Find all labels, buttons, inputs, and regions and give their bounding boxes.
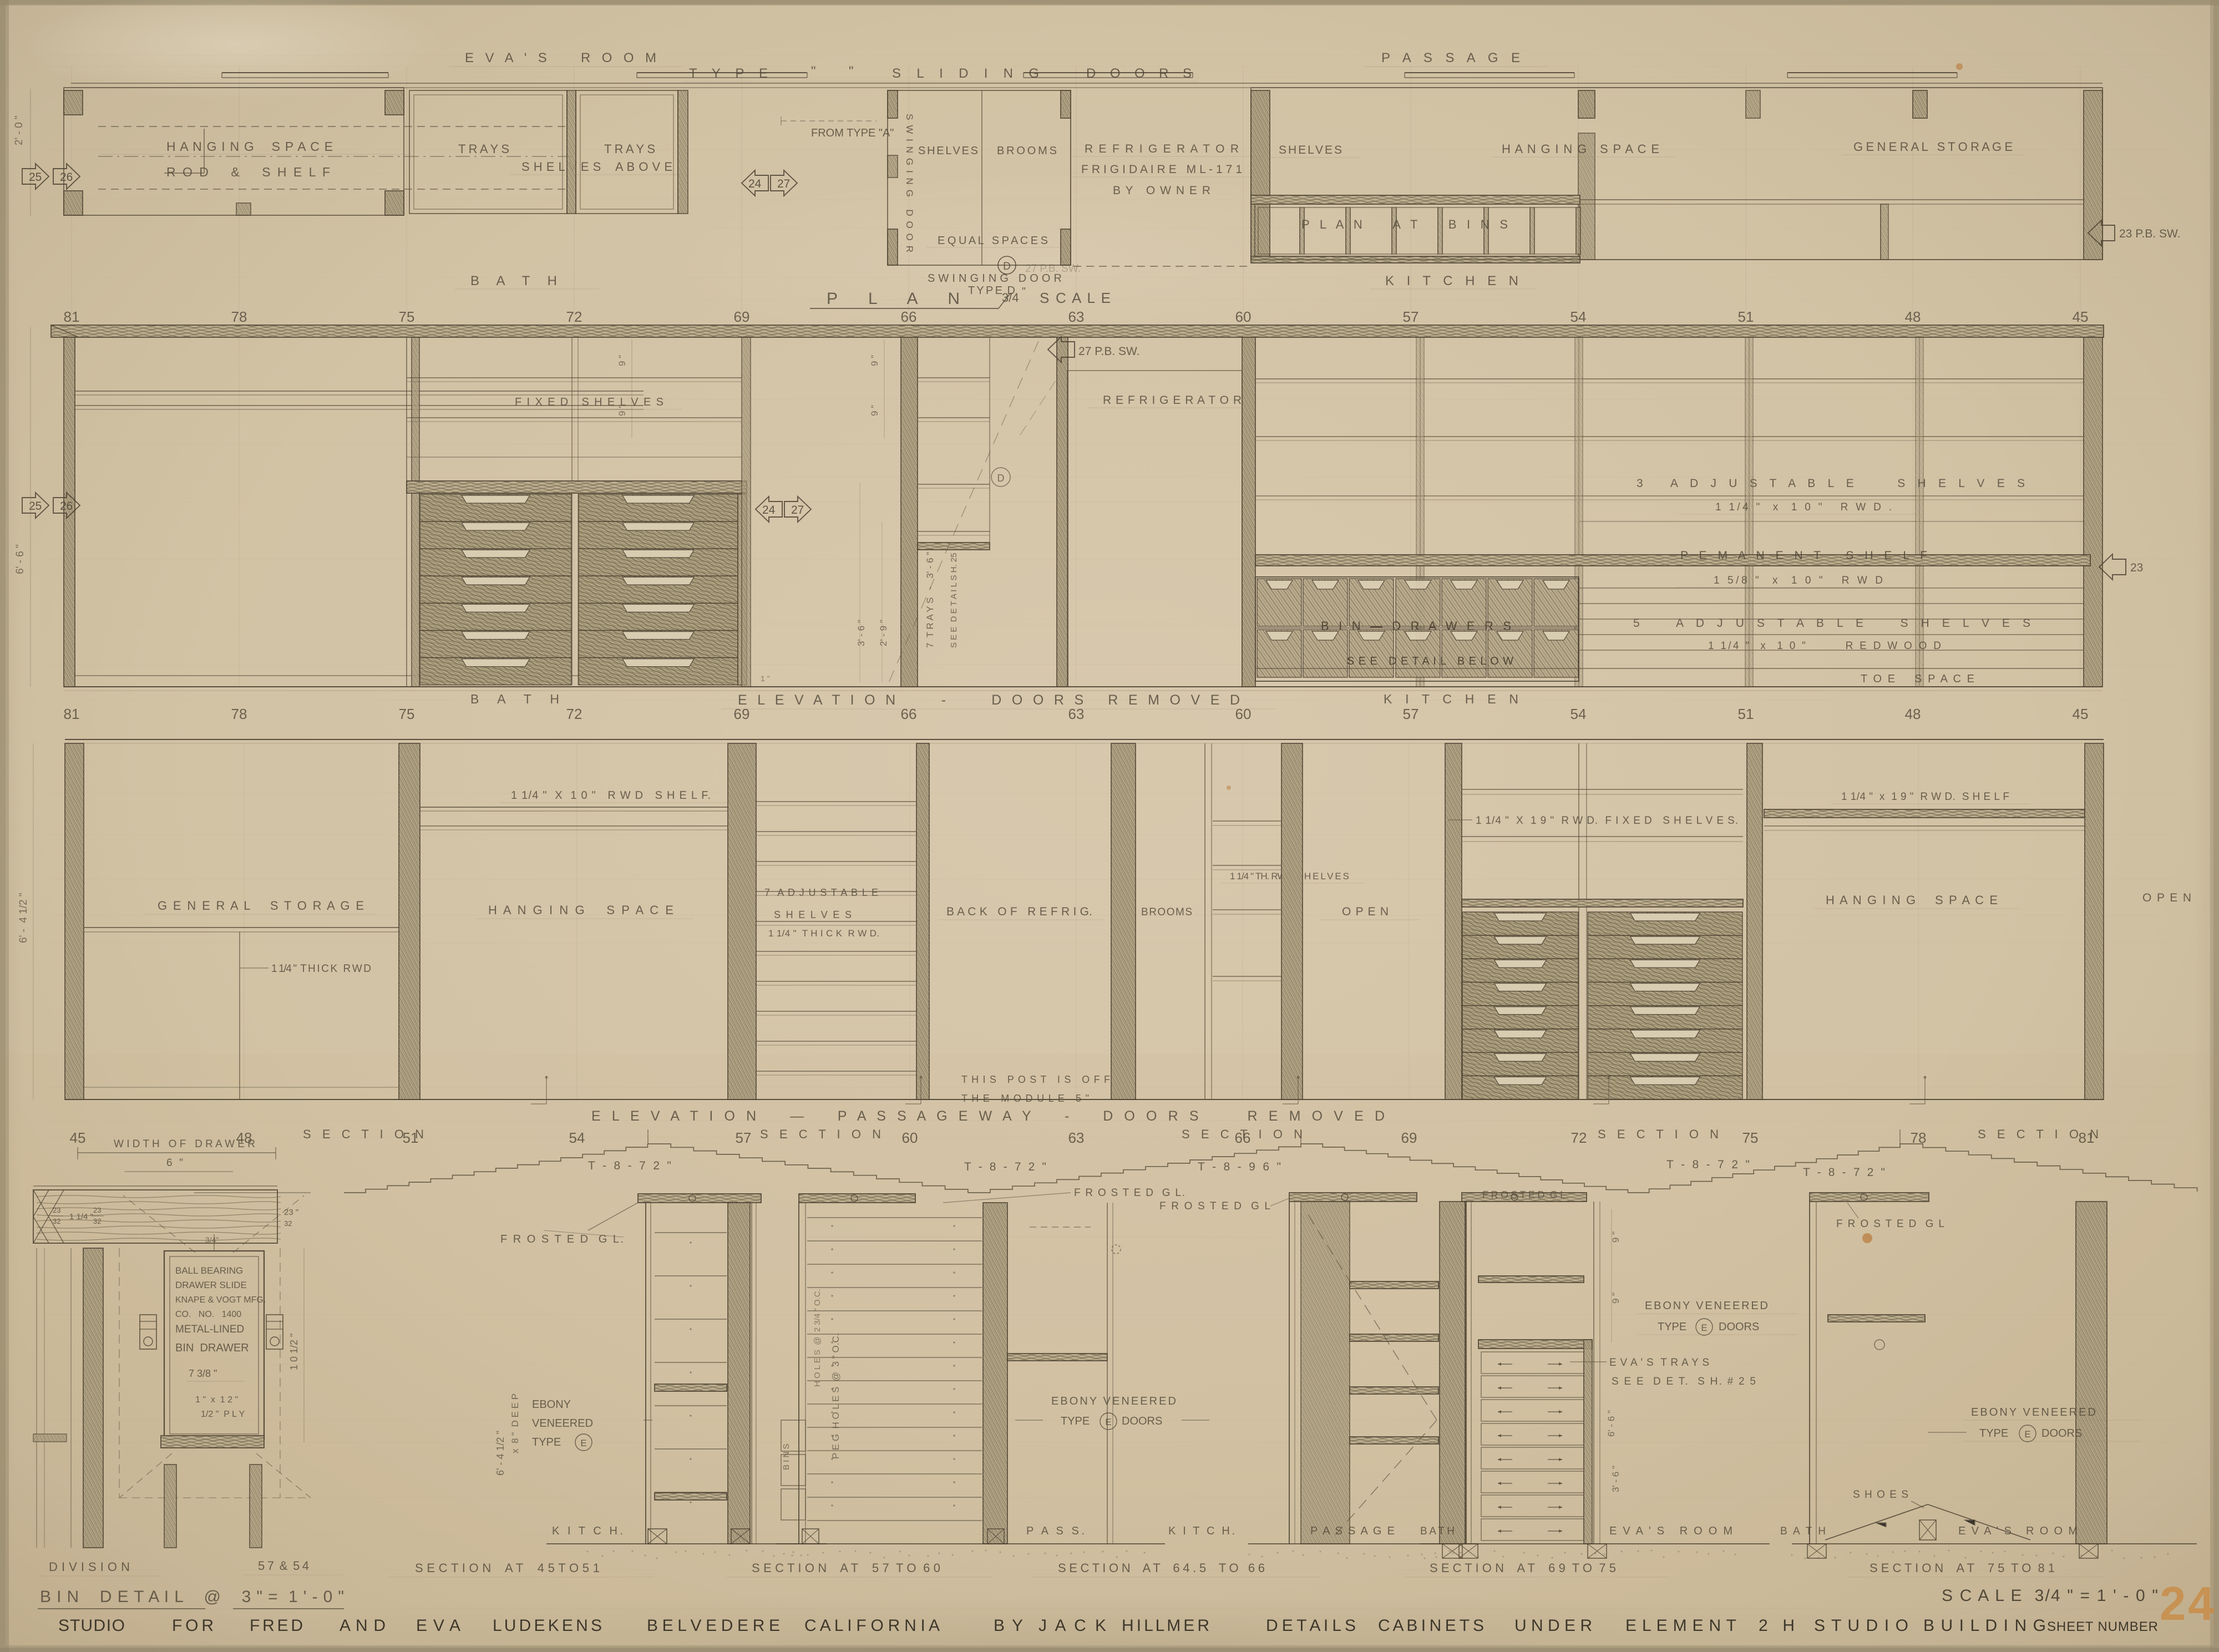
- svg-text:D: D: [997, 473, 1005, 484]
- svg-text:1 1/4 " X 1 9 " R W D. F I: 1 1/4 " X 1 9 " R W D. F I X E D S H E L…: [1476, 815, 1738, 827]
- svg-text:S E E D E T A I L S H. 25: S E E D E T A I L S H. 25: [949, 553, 959, 648]
- svg-text:W I D T H O F D R A W E R: W I D T H O F D R A W E R: [114, 1138, 255, 1150]
- svg-text:32: 32: [53, 1217, 60, 1225]
- svg-text:H A N G I N G S P A C E: H A N G I N G S P A C E: [1826, 893, 1998, 907]
- svg-text:63: 63: [1068, 308, 1085, 325]
- svg-text:D E T A I L S: D E T A I L S: [1266, 1616, 1356, 1635]
- svg-text:KNAPE & VOGT MFG.: KNAPE & VOGT MFG.: [175, 1295, 266, 1305]
- svg-text:45: 45: [2073, 308, 2089, 325]
- svg-text:TYPE: TYPE: [1658, 1321, 1686, 1333]
- svg-text:60: 60: [1235, 706, 1252, 722]
- svg-text:R E F R I G E R A T O R: R E F R I G E R A T O R: [1103, 394, 1242, 407]
- svg-text:S E C T I O N A T 6 4 .: S E C T I O N A T 6 4 . 5 T O 6 6: [1058, 1561, 1265, 1575]
- svg-text:63: 63: [1068, 1129, 1085, 1146]
- svg-text:27 P.B. SW.: 27 P.B. SW.: [1078, 345, 1140, 358]
- svg-text:": ": [811, 64, 816, 79]
- svg-text:B A T H: B A T H: [1420, 1526, 1455, 1537]
- svg-text:D O O R S: D O O R S: [1086, 66, 1192, 81]
- svg-text:S E C T I O N A T 5 7 T: S E C T I O N A T 5 7 T O 6 0: [752, 1561, 940, 1575]
- svg-text:S H E L V E S: S H E L V E S: [1279, 144, 1342, 156]
- svg-text:EBONY: EBONY: [532, 1398, 571, 1411]
- svg-text:U N D E R: U N D E R: [1514, 1616, 1592, 1635]
- svg-text:78: 78: [231, 308, 247, 325]
- svg-text:2 H: 2 H: [1759, 1616, 1795, 1635]
- svg-text:1 1/4 ": 1 1/4 ": [69, 1212, 93, 1222]
- svg-text:45: 45: [2073, 706, 2089, 722]
- svg-text:72: 72: [1571, 1129, 1587, 1146]
- svg-text:B I N — D R A W E R: B I N — D R A W E R S: [1321, 619, 1511, 633]
- svg-text:S E E D E T. S H. # 2 5: S E E D E T. S H. # 2 5: [1612, 1376, 1756, 1387]
- svg-text:S H E L V E S: S H E L V E S: [918, 145, 978, 157]
- svg-text:B Y O W N E R: B Y O W N E R: [1113, 184, 1210, 197]
- svg-text:B R O O M S: B R O O M S: [997, 145, 1057, 157]
- svg-text:R O D & S H E L F: R O D & S H E L F: [166, 165, 330, 179]
- svg-text:B A C K O F R E F R I G.: B A C K O F R E F R I G.: [946, 905, 1092, 918]
- svg-text:DOORS: DOORS: [2041, 1427, 2082, 1440]
- svg-text:23: 23: [53, 1206, 60, 1214]
- svg-text:69: 69: [734, 308, 750, 325]
- svg-text:81: 81: [64, 706, 80, 722]
- svg-text:23 P.B. SW.: 23 P.B. SW.: [2119, 227, 2181, 240]
- svg-text:27: 27: [777, 178, 790, 190]
- svg-text:METAL-LINED: METAL-LINED: [175, 1324, 244, 1335]
- svg-text:27 P.B. SW.: 27 P.B. SW.: [1025, 263, 1081, 275]
- svg-text:1/2 " P L Y: 1/2 " P L Y: [201, 1410, 245, 1419]
- svg-text:E: E: [580, 1438, 586, 1448]
- svg-text:51: 51: [1738, 308, 1754, 325]
- svg-text:S T U D I O: S T U D I O: [1814, 1616, 1908, 1635]
- svg-text:66: 66: [901, 308, 917, 325]
- svg-text:9 ": 9 ": [869, 355, 880, 366]
- svg-text:78: 78: [231, 706, 247, 722]
- svg-text:7 A D J U S T A B L E: 7 A D J U S T A B L E: [764, 887, 878, 898]
- svg-text:27: 27: [791, 504, 804, 516]
- svg-text:1 1/4 " T H I C K R W D.: 1 1/4 " T H I C K R W D.: [768, 928, 879, 939]
- svg-text:1 ": 1 ": [761, 674, 770, 683]
- svg-text:K I T C H.: K I T C H.: [552, 1525, 623, 1537]
- svg-text:23: 23: [2130, 561, 2143, 574]
- svg-text:75: 75: [1742, 1129, 1759, 1146]
- svg-text:6' - 4 1/2 ": 6' - 4 1/2 ": [18, 893, 29, 943]
- svg-text:9 ": 9 ": [1610, 1232, 1621, 1243]
- svg-text:T H E M O D U L E 5 ": T H E M O D U L E 5 ": [961, 1093, 1089, 1104]
- svg-text:B A T H: B A T H: [1780, 1526, 1826, 1537]
- svg-text:6' - 4 1/2 ": 6' - 4 1/2 ": [495, 1431, 506, 1476]
- svg-text:": ": [849, 64, 854, 79]
- svg-text:CO. NO. 1400: CO. NO. 1400: [175, 1310, 241, 1319]
- svg-text:A N D: A N D: [340, 1616, 386, 1635]
- svg-text:69: 69: [1401, 1129, 1417, 1146]
- svg-text:B I N S: B I N S: [782, 1443, 791, 1470]
- svg-text:F R E D: F R E D: [250, 1616, 303, 1635]
- svg-text:S T U D I O: S T U D I O: [58, 1616, 125, 1635]
- svg-text:1 1/4 " x 1 9 " R W D. S H: 1 1/4 " x 1 9 " R W D. S H E L F: [1841, 791, 2009, 803]
- svg-text:3/4: 3/4: [1002, 291, 1019, 305]
- svg-text:9 ": 9 ": [869, 405, 880, 416]
- svg-text:E: E: [1701, 1322, 1707, 1333]
- svg-text:7 3/8 ": 7 3/8 ": [189, 1368, 217, 1379]
- svg-text:G E N E R A L S T O R A G E: G E N E R A L S T O R A G E: [158, 899, 364, 913]
- svg-text:24: 24: [762, 504, 776, 516]
- svg-text:F R O S T E D G L.: F R O S T E D G L.: [1074, 1187, 1185, 1199]
- svg-text:1 1/4 " X 1 0 " R W D S: 1 1/4 " X 1 0 " R W D S H E L F.: [511, 789, 711, 802]
- svg-text:E V A ' S R O O M: E V A ' S R O O M: [1958, 1525, 2078, 1537]
- svg-text:75: 75: [399, 308, 415, 325]
- svg-text:1 1/4 " T H I C K R W D: 1 1/4 " T H I C K R W D: [271, 963, 371, 975]
- svg-text:24: 24: [2160, 1578, 2217, 1630]
- svg-text:1 0 1/2 ": 1 0 1/2 ": [288, 1334, 300, 1370]
- svg-text:B I N D E T A I L @ 3: B I N D E T A I L @ 3 " = 1 ' - 0 ": [40, 1588, 344, 1606]
- svg-text:VENEERED: VENEERED: [532, 1417, 593, 1430]
- svg-text:75: 75: [399, 706, 415, 722]
- svg-text:T R A Y S: T R A Y S: [458, 142, 509, 156]
- svg-text:81: 81: [64, 308, 80, 325]
- svg-text:7 T R A Y S - 3' - 6 ": 7 T R A Y S - 3' - 6 ": [925, 552, 935, 648]
- svg-text:23 ": 23 ": [284, 1208, 298, 1217]
- svg-text:BALL BEARING: BALL BEARING: [175, 1265, 243, 1276]
- svg-text:26: 26: [60, 500, 73, 513]
- svg-text:O P E N: O P E N: [2142, 891, 2191, 904]
- svg-text:63: 63: [1068, 706, 1085, 722]
- svg-text:DOORS: DOORS: [1719, 1321, 1759, 1333]
- svg-text:H I L L M E R: H I L L M E R: [1122, 1616, 1209, 1635]
- svg-text:B R O O M S: B R O O M S: [1141, 906, 1192, 918]
- svg-text:O P E N: O P E N: [1342, 905, 1389, 918]
- svg-text:54: 54: [1570, 308, 1587, 325]
- svg-text:48: 48: [1905, 706, 1921, 722]
- svg-text:54: 54: [1570, 706, 1587, 722]
- svg-text:TYPE: TYPE: [1061, 1415, 1090, 1427]
- svg-text:F O R: F O R: [172, 1616, 214, 1635]
- svg-text:57: 57: [736, 1129, 752, 1146]
- svg-text:F R O S T E D G L.: F R O S T E D G L.: [1482, 1189, 1568, 1200]
- svg-text:E V A: E V A: [416, 1616, 460, 1635]
- svg-text:6 ": 6 ": [166, 1157, 183, 1169]
- svg-text:S E C T I O N A T 4 5 T: S E C T I O N A T 4 5 T O 5 1: [415, 1561, 600, 1575]
- svg-text:F R O S T E D G L: F R O S T E D G L: [1159, 1200, 1270, 1212]
- svg-text:3' - 6 ": 3' - 6 ": [856, 620, 867, 646]
- svg-text:32: 32: [93, 1217, 101, 1225]
- svg-text:57: 57: [1403, 706, 1419, 722]
- svg-text:24: 24: [748, 178, 762, 190]
- svg-text:H O L E S @ 2 3/4 " O.C.: H O L E S @ 2 3/4 " O.C.: [813, 1289, 822, 1387]
- svg-text:": ": [1022, 286, 1026, 298]
- svg-text:1 " x 1 2 ": 1 " x 1 2 ": [195, 1395, 238, 1405]
- svg-text:45: 45: [70, 1129, 86, 1146]
- svg-text:E V A ' S R O O M: E V A ' S R O O M: [1609, 1525, 1732, 1537]
- svg-text:S W I N G I N G D O O R: S W I N G I N G D O O R: [904, 114, 915, 252]
- svg-text:F R O S T E D G L.: F R O S T E D G L.: [500, 1233, 624, 1245]
- svg-text:H A N G I N G S P A C E: H A N G I N G S P A C E: [166, 139, 333, 154]
- svg-text:32: 32: [284, 1219, 292, 1228]
- svg-text:BIN DRAWER: BIN DRAWER: [175, 1342, 249, 1354]
- svg-text:25: 25: [29, 171, 42, 184]
- svg-text:R E F R I G E R A T O R: R E F R I G E R A T O R: [1085, 143, 1239, 155]
- svg-text:S E C T I O N A T 7 5 T: S E C T I O N A T 7 5 T O 8 1: [1870, 1561, 2055, 1575]
- svg-text:TYPE: TYPE: [1979, 1427, 2008, 1440]
- svg-text:E V A ' S T R A Y S: E V A ' S T R A Y S: [1609, 1357, 1709, 1369]
- svg-text:72: 72: [566, 706, 582, 722]
- svg-text:P E G H O L E S @ 3 " O.C.: P E G H O L E S @ 3 " O.C.: [830, 1334, 841, 1459]
- svg-text:26: 26: [60, 171, 73, 184]
- svg-text:F R O S T E D G L: F R O S T E D G L: [1836, 1218, 1944, 1230]
- svg-text:3/4": 3/4": [205, 1235, 219, 1244]
- svg-text:E V A ' S R O O M: E V A ' S R O O M: [465, 50, 656, 65]
- svg-text:S H E E T N U M B E R: S H E E T N U M B E R: [2047, 1619, 2158, 1634]
- svg-text:66: 66: [1235, 1129, 1251, 1146]
- svg-text:60: 60: [1235, 308, 1252, 325]
- svg-text:51: 51: [1738, 706, 1754, 722]
- svg-text:E L E M E N T: E L E M E N T: [1625, 1616, 1736, 1635]
- svg-text:6' - 6 ": 6' - 6 ": [14, 544, 26, 574]
- svg-text:D I V I S I O N: D I V I S I O N: [49, 1560, 130, 1574]
- svg-text:S E E D E T A I L B E L O: S E E D E T A I L B E L O W: [1347, 655, 1513, 667]
- svg-text:DRAWER SLIDE: DRAWER SLIDE: [175, 1280, 247, 1290]
- svg-text:9 ": 9 ": [617, 405, 627, 416]
- svg-text:9 ": 9 ": [1610, 1293, 1621, 1304]
- svg-text:60: 60: [902, 1129, 918, 1146]
- svg-text:66: 66: [901, 706, 917, 722]
- svg-text:S E C T I O N A T 6 9 T: S E C T I O N A T 6 9 T O 7 5: [1430, 1561, 1616, 1575]
- svg-text:T H I S P O S T I S O F: T H I S P O S T I S O F F: [961, 1074, 1110, 1085]
- svg-text:T O E S P A C E: T O E S P A C E: [1861, 673, 1974, 685]
- svg-text:FROM TYPE "A": FROM TYPE "A": [811, 127, 894, 139]
- svg-text:48: 48: [1905, 308, 1921, 325]
- svg-text:E: E: [1105, 1417, 1111, 1427]
- svg-text:B E L V E D E R E: B E L V E D E R E: [647, 1616, 780, 1635]
- svg-text:3' - 6 ": 3' - 6 ": [1610, 1466, 1621, 1492]
- svg-text:54: 54: [569, 1129, 585, 1146]
- svg-text:L U D E K E N S: L U D E K E N S: [493, 1616, 602, 1635]
- svg-text:E Q U A L S P A C E S: E Q U A L S P A C E S: [938, 235, 1048, 247]
- svg-text:T R A Y S: T R A Y S: [604, 142, 655, 156]
- svg-text:5 7 & 5 4: 5 7 & 5 4: [258, 1559, 309, 1573]
- svg-text:H A N G I N G S P A C E: H A N G I N G S P A C E: [1502, 142, 1659, 156]
- svg-text:G E N E R A L S T O R A G E: G E N E R A L S T O R A G E: [1853, 140, 2013, 154]
- svg-text:2' - 0 ": 2' - 0 ": [13, 115, 25, 145]
- svg-text:S H E L V E S A B O V E: S H E L V E S A B O V E: [521, 160, 672, 174]
- svg-text:TYPE: TYPE: [532, 1436, 561, 1448]
- svg-text:C A B I N E T S: C A B I N E T S: [1378, 1616, 1484, 1635]
- svg-text:2' - 9 ": 2' - 9 ": [878, 620, 889, 646]
- svg-text:K I T C H.: K I T C H.: [1168, 1525, 1235, 1537]
- svg-text:1 1/4 " x 1 0 " R E D: 1 1/4 " x 1 0 " R E D W O O D: [1708, 640, 1941, 652]
- svg-text:9 ": 9 ": [617, 355, 627, 366]
- svg-text:6' - 6 ": 6' - 6 ": [1606, 1410, 1617, 1437]
- svg-text:B Y: B Y: [994, 1616, 1023, 1635]
- svg-text:S H O E S: S H O E S: [1853, 1489, 1908, 1501]
- svg-text:x 8 " D E E P: x 8 " D E E P: [510, 1393, 520, 1453]
- svg-text:23: 23: [93, 1206, 101, 1214]
- svg-text:81: 81: [2079, 1129, 2095, 1146]
- svg-text:E: E: [2024, 1429, 2030, 1440]
- svg-text:69: 69: [734, 706, 750, 722]
- svg-text:57: 57: [1403, 308, 1419, 325]
- svg-text:72: 72: [566, 308, 582, 325]
- svg-text:51: 51: [403, 1129, 419, 1146]
- svg-text:D: D: [1003, 261, 1011, 272]
- svg-text:DOORS: DOORS: [1122, 1415, 1162, 1427]
- svg-text:C A L I F O R N I A: C A L I F O R N I A: [804, 1616, 940, 1635]
- svg-text:F R I G I D A I R E M L - 1: F R I G I D A I R E M L - 1 7 1: [1081, 163, 1242, 176]
